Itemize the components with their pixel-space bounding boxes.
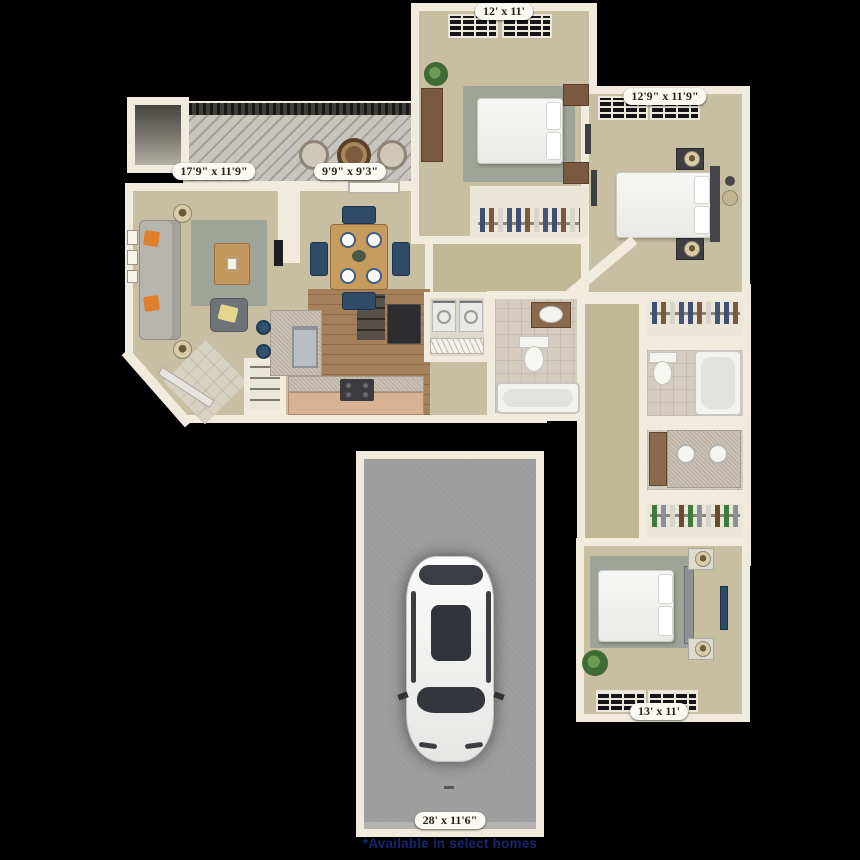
hanging-clothes [480,208,580,232]
table-lamp [684,151,700,167]
nightstand [563,84,589,106]
table-lamp [695,641,711,657]
dimension-label-bedroom-right: 12'9" x 11'9" [623,88,706,105]
tv [274,240,283,266]
table-lamp [695,551,711,567]
pass-through-window [348,180,400,194]
stove [340,379,374,401]
dimension-label-living-room: 17'9" x 11'9" [172,163,255,180]
dresser [421,88,443,162]
washer-door [437,310,451,324]
wall-decor [725,176,735,186]
headboard [710,166,720,242]
vanity-sink [676,444,696,464]
throw-pillow [143,295,160,312]
dimension-label-dining-room: 9'9" x 9'3" [314,163,386,180]
dinner-plate [366,232,382,248]
floor-lamp [173,340,192,359]
hallway [577,296,647,546]
bar-stool [256,320,271,335]
wall-frame [127,250,138,265]
bathtub [496,382,580,414]
bed-pillow [546,102,561,130]
footnote: *Available in select homes [363,836,537,851]
dining-chair [392,242,410,276]
dining-chair [342,292,376,310]
entry-porch [127,97,189,173]
bed-pillow [658,606,673,636]
floor-plan: 12' x 11' 12'9" x 11'9" 17'9" x 11'9" 9'… [0,0,860,860]
floor-lamp [173,204,192,223]
bar-stool [256,344,271,359]
hanging-clothes [652,302,740,324]
wall-art [585,124,591,154]
car-rear-window [419,565,483,585]
bed-pillow [658,574,673,604]
bed-pillow [694,206,710,234]
car-side-window [486,591,491,683]
centerpiece [352,250,366,262]
vanity-cabinet [649,432,667,486]
balcony-railing [189,103,411,115]
wall-art [591,170,597,206]
dinner-plate [366,268,382,284]
dinner-plate [340,232,356,248]
car [406,556,494,762]
table-lamp [684,241,700,257]
toilet-bowl [653,361,672,385]
wall-mirror [722,190,738,206]
dinner-plate [340,268,356,284]
bed-pillow [694,176,710,204]
vanity-sink [539,306,563,323]
dimension-label-bedroom-bottom: 13' x 11' [630,703,688,720]
car-headlight [419,742,438,749]
dimension-label-bedroom-top: 12' x 11' [475,3,533,20]
headboard [684,566,694,644]
bathtub [694,350,742,416]
bed-pillow [546,132,561,160]
wall-frame [127,270,138,283]
car-sunroof [431,605,471,661]
louver-doors [430,338,484,354]
vanity-sink [708,444,728,464]
refrigerator [387,304,421,344]
car-windshield [417,687,485,713]
dining-chair [342,206,376,224]
car-headlight [465,742,484,749]
dryer-door [464,310,478,324]
potted-plant [424,62,448,86]
potted-plant [582,650,608,676]
kitchen-sink [292,326,318,368]
wall-art [720,586,728,630]
garage-door-handle [444,786,454,789]
car-side-window [411,591,416,683]
nightstand [563,162,589,184]
throw-pillow [143,230,160,247]
dining-chair [310,242,328,276]
wall-frame [127,230,138,245]
toilet-bowl [524,346,544,372]
table-decor [227,258,237,270]
dimension-label-garage: 28' x 11'6" [415,812,486,829]
hanging-clothes [652,505,740,527]
